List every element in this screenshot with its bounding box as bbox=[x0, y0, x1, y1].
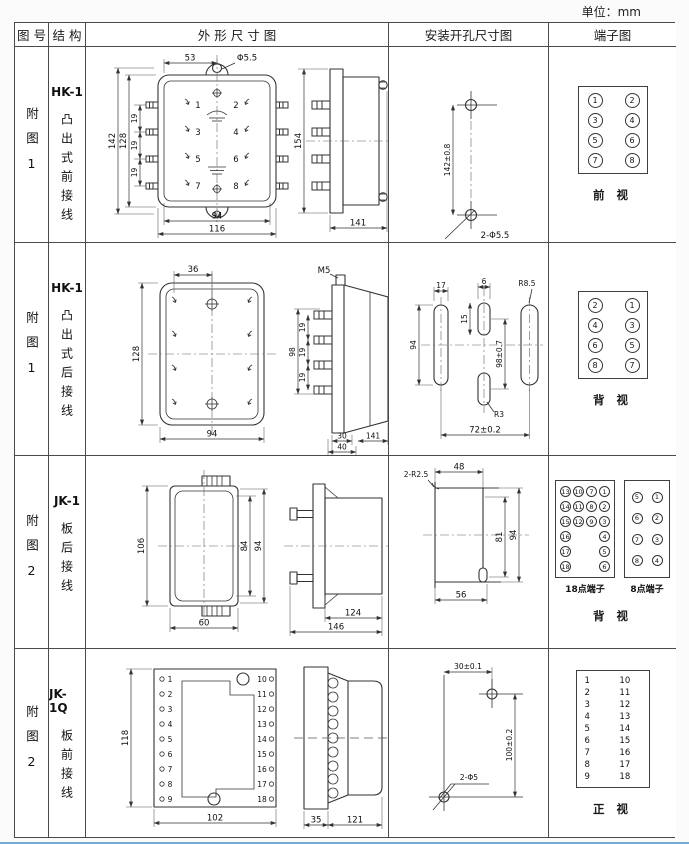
structure-desc: 凸出式前接线 bbox=[59, 113, 76, 227]
terminal-pin: 2 bbox=[599, 501, 610, 512]
front-view: 1 2 3 4 5 6 7 8 9 10 11 12 13 14 15 16 1… bbox=[121, 669, 276, 827]
terminal-pin: 12 bbox=[619, 700, 644, 710]
pin-number: 3 bbox=[168, 705, 173, 714]
dim-label: 15 bbox=[460, 314, 469, 324]
terminal-pin: 7 bbox=[588, 153, 603, 168]
terminal-cell-row1: 12345678 前 视 bbox=[549, 47, 676, 243]
header-structure: 结 构 bbox=[49, 23, 86, 47]
terminal-8pt: 51627384 8点端子 bbox=[624, 480, 670, 595]
pin-number: 13 bbox=[257, 720, 267, 729]
pin-number: 5 bbox=[195, 155, 200, 165]
dim-label: 116 bbox=[209, 225, 225, 235]
pin-number: 8 bbox=[233, 182, 238, 192]
dim-label: 94 bbox=[207, 430, 218, 440]
dim-label: 98 bbox=[288, 347, 297, 357]
pin-number: 18 bbox=[257, 795, 267, 804]
dim-label: 19 bbox=[130, 141, 139, 151]
terminal-pin: 4 bbox=[588, 318, 603, 333]
dim-label: 124 bbox=[345, 609, 361, 619]
dim-label: 40 bbox=[337, 443, 347, 452]
figure-label: 附图1 bbox=[22, 107, 41, 183]
side-view: 35 121 bbox=[294, 667, 388, 829]
mounting-drawing-hk1-rear-wiring: 17 94 6 15 98±0.7 R8.5 R3 72±0.2 bbox=[389, 243, 549, 456]
terminal-box-label: 8点端子 bbox=[630, 582, 663, 595]
pin-number: 5 bbox=[168, 735, 173, 744]
terminal-pin: 3 bbox=[585, 700, 614, 710]
mounting-drawing-hk1-front-wiring: 142±0.8 2-Φ5.5 bbox=[389, 47, 549, 243]
pin-number: 4 bbox=[233, 128, 238, 138]
terminal-pin: 3 bbox=[652, 534, 663, 545]
dim-label: 102 bbox=[207, 814, 223, 824]
structure-cell-row1: HK-1 凸出式前接线 bbox=[49, 47, 86, 243]
dim-label: 60 bbox=[199, 619, 210, 629]
terminal-pin: 8 bbox=[632, 555, 643, 566]
terminal-boxes: 131071141182151293164175186 18点端子 516273… bbox=[555, 480, 670, 595]
terminal-pin: 13 bbox=[560, 486, 571, 497]
view-caption: 正 视 bbox=[593, 801, 632, 817]
dim-label: 48 bbox=[454, 463, 465, 473]
terminal-pin: 9 bbox=[585, 772, 614, 782]
terminal-cell-row3: 131071141182151293164175186 18点端子 516273… bbox=[549, 456, 676, 649]
dim-label: 30±0.1 bbox=[454, 662, 482, 671]
header-terminal: 端子图 bbox=[549, 23, 676, 47]
pin-number: 11 bbox=[257, 690, 267, 699]
manual-page: { "unit_label": "单位：mm", "page": { "acce… bbox=[0, 0, 689, 844]
terminal-pin: 16 bbox=[560, 531, 571, 542]
terminal-pin: 8 bbox=[585, 760, 614, 770]
terminal-pin: 3 bbox=[599, 516, 610, 527]
dim-label: Φ5.5 bbox=[237, 54, 257, 64]
dim-label: 128 bbox=[132, 346, 142, 362]
dim-label: 2-Φ5 bbox=[460, 773, 478, 782]
dim-label: 2-R2.5 bbox=[404, 470, 429, 479]
terminal-box: 21436587 bbox=[578, 291, 648, 379]
terminal-pin: 17 bbox=[619, 760, 644, 770]
terminal-pin: 1 bbox=[599, 486, 610, 497]
dim-label: 6 bbox=[482, 277, 487, 286]
terminal-pin: 15 bbox=[619, 736, 644, 746]
terminal-pin: 14 bbox=[560, 501, 571, 512]
terminal-pin: 2 bbox=[625, 93, 640, 108]
mounting-cell-row4: 30±0.1 100±0.2 2-Φ5 bbox=[389, 649, 549, 837]
terminal-pin: 8 bbox=[586, 501, 597, 512]
terminal-box: 12345678 bbox=[578, 86, 648, 174]
terminal-pin: 6 bbox=[632, 513, 643, 524]
terminal-pin: 15 bbox=[560, 516, 571, 527]
outline-cell-row4: 1 2 3 4 5 6 7 8 9 10 11 12 13 14 15 16 1… bbox=[86, 649, 389, 837]
dim-label: R3 bbox=[494, 410, 504, 419]
figure-label: 附图2 bbox=[22, 514, 41, 590]
dim-label: M5 bbox=[318, 266, 331, 276]
pin-number: 2 bbox=[168, 690, 173, 699]
structure-cell-row3: JK-1 板后接线 bbox=[49, 456, 86, 649]
terminal-box-8: 51627384 bbox=[624, 480, 670, 578]
terminal-pin: 4 bbox=[599, 531, 610, 542]
structure-cell-row4: JK-1Q 板前接线 bbox=[49, 649, 86, 837]
structure-cell-row2: HK-1 凸出式后接线 bbox=[49, 243, 86, 456]
terminal-pin: 4 bbox=[625, 113, 640, 128]
terminal-pin: 1 bbox=[588, 93, 603, 108]
pin-number: 10 bbox=[257, 675, 267, 684]
pin-number: 6 bbox=[233, 155, 238, 165]
view-caption: 背 视 bbox=[593, 608, 632, 624]
dim-label: 128 bbox=[119, 133, 129, 149]
dim-label: 53 bbox=[185, 54, 196, 64]
header-figure: 图 号 bbox=[15, 23, 49, 47]
dim-label: 35 bbox=[311, 816, 322, 826]
unit-label: 单位：mm bbox=[582, 3, 641, 20]
terminal-pin: 4 bbox=[585, 712, 614, 722]
dim-label: 142 bbox=[108, 133, 118, 149]
pin-number: 16 bbox=[257, 765, 267, 774]
mounting-drawing-jk1q-board-front: 30±0.1 100±0.2 2-Φ5 bbox=[389, 649, 549, 837]
terminal-col-left: 123456789 bbox=[585, 676, 614, 782]
dim-label: 154 bbox=[294, 133, 304, 149]
dim-label: 94 bbox=[254, 541, 264, 552]
terminal-pin: 3 bbox=[588, 113, 603, 128]
dim-label: 121 bbox=[347, 816, 363, 826]
side-view: 124 146 bbox=[284, 484, 388, 636]
dim-label: 19 bbox=[298, 323, 307, 333]
dim-label: 146 bbox=[328, 623, 344, 633]
terminal-pin: 2 bbox=[652, 513, 663, 524]
header-outline: 外 形 尺 寸 图 bbox=[86, 23, 389, 47]
dim-label: 141 bbox=[350, 219, 366, 229]
terminal-pin: 2 bbox=[588, 298, 603, 313]
terminal-pin: 6 bbox=[599, 561, 610, 572]
terminal-pin: 17 bbox=[560, 546, 571, 557]
terminal-pin: 5 bbox=[588, 133, 603, 148]
pin-number: 4 bbox=[168, 720, 173, 729]
pin-number: 8 bbox=[168, 780, 173, 789]
dim-label: 19 bbox=[130, 114, 139, 124]
terminal-pin: 7 bbox=[586, 486, 597, 497]
terminal-pin: 16 bbox=[619, 748, 644, 758]
mounting-cell-row1: 142±0.8 2-Φ5.5 bbox=[389, 47, 549, 243]
terminal-pin: 1 bbox=[652, 492, 663, 503]
pin-number: 3 bbox=[195, 128, 200, 138]
structure-desc: 板前接线 bbox=[59, 729, 76, 805]
terminal-pin: 11 bbox=[573, 501, 584, 512]
outline-drawing-jk1-board-rear: 106 60 84 94 bbox=[86, 456, 389, 649]
pin-number: 7 bbox=[195, 182, 200, 192]
terminal-pin: 18 bbox=[619, 772, 644, 782]
pin-number: 15 bbox=[257, 750, 267, 759]
dim-label: 100±0.2 bbox=[505, 729, 514, 762]
outline-drawing-hk1-front-wiring: 53 Φ5.5 1 2 bbox=[86, 47, 389, 243]
outline-cell-row2: 36 128 94 M5 bbox=[86, 243, 389, 456]
terminal-cell-row2: 21436587 背 视 bbox=[549, 243, 676, 456]
dim-label: 98±0.7 bbox=[495, 340, 504, 368]
dim-label: 17 bbox=[436, 281, 446, 290]
terminal-pin: 14 bbox=[619, 724, 644, 734]
structure-desc: 板后接线 bbox=[59, 522, 76, 598]
terminal-box-18: 131071141182151293164175186 bbox=[555, 480, 615, 578]
figure-label: 附图1 bbox=[22, 311, 41, 387]
outline-drawing-jk1q-board-front: 1 2 3 4 5 6 7 8 9 10 11 12 13 14 15 16 1… bbox=[86, 649, 389, 837]
outline-cell-row1: 53 Φ5.5 1 2 bbox=[86, 47, 389, 243]
pin-number: 14 bbox=[257, 735, 267, 744]
figure-cell-row4: 附图2 bbox=[15, 649, 49, 837]
figure-label: 附图2 bbox=[22, 705, 41, 781]
terminal-pin: 8 bbox=[625, 153, 640, 168]
terminal-pin: 5 bbox=[625, 338, 640, 353]
front-view: 106 60 84 94 bbox=[137, 470, 268, 632]
terminal-pin: 2 bbox=[585, 688, 614, 698]
terminal-cell-row4: 123456789 101112131415161718 正 视 bbox=[549, 649, 676, 837]
terminal-pin: 5 bbox=[599, 546, 610, 557]
terminal-pin: 9 bbox=[586, 516, 597, 527]
dim-label: R8.5 bbox=[518, 279, 535, 288]
dim-label: 19 bbox=[298, 373, 307, 383]
terminal-pin: 10 bbox=[619, 676, 644, 686]
terminal-pin: 13 bbox=[619, 712, 644, 722]
terminal-pin: 1 bbox=[625, 298, 640, 313]
header-mounting: 安装开孔尺寸图 bbox=[389, 23, 549, 47]
figure-cell-row3: 附图2 bbox=[15, 456, 49, 649]
terminal-pin: 4 bbox=[652, 555, 663, 566]
mounting-cell-row3: 2-R2.5 48 81 94 56 bbox=[389, 456, 549, 649]
terminal-pin: 12 bbox=[573, 516, 584, 527]
terminal-box: 123456789 101112131415161718 bbox=[576, 670, 650, 788]
terminal-col-right: 101112131415161718 bbox=[613, 676, 644, 782]
figure-cell-row2: 附图1 bbox=[15, 243, 49, 456]
pin-number: 7 bbox=[168, 765, 173, 774]
dim-label: 81 bbox=[495, 532, 505, 543]
terminal-pin: 6 bbox=[588, 338, 603, 353]
dim-label: 106 bbox=[137, 538, 147, 554]
dim-label: 84 bbox=[240, 541, 250, 552]
terminal-pin: 5 bbox=[632, 492, 643, 503]
model-label: JK-1Q bbox=[49, 687, 85, 715]
terminal-pin: 7 bbox=[585, 748, 614, 758]
model-label: HK-1 bbox=[51, 281, 83, 295]
terminal-pin: 6 bbox=[585, 736, 614, 746]
dim-label: 19 bbox=[298, 348, 307, 358]
dim-label: 94 bbox=[409, 340, 418, 350]
side-view: M5 98 19 19 19 3 bbox=[288, 266, 388, 455]
front-view: 36 128 94 bbox=[132, 265, 276, 443]
pin-number: 9 bbox=[168, 795, 173, 804]
dim-label: 72±0.2 bbox=[469, 426, 500, 436]
pin-number: 12 bbox=[257, 705, 267, 714]
dim-label: 19 bbox=[130, 168, 139, 178]
mounting-drawing-jk1-board-rear: 2-R2.5 48 81 94 56 bbox=[389, 456, 549, 649]
model-label: JK-1 bbox=[54, 494, 80, 508]
dim-label: 56 bbox=[456, 591, 467, 601]
dim-label: 36 bbox=[188, 265, 199, 275]
pin-number: 1 bbox=[195, 101, 200, 111]
drawing-table: 图 号 结 构 外 形 尺 寸 图 安装开孔尺寸图 端子图 附图1 HK-1 凸… bbox=[14, 22, 675, 838]
dim-label: 2-Φ5.5 bbox=[481, 231, 510, 241]
pin-number: 1 bbox=[168, 675, 173, 684]
outline-drawing-hk1-rear-wiring: 36 128 94 M5 bbox=[86, 243, 389, 456]
terminal-pin: 3 bbox=[625, 318, 640, 333]
view-caption: 前 视 bbox=[593, 187, 632, 203]
pin-number: 6 bbox=[168, 750, 173, 759]
view-caption: 背 视 bbox=[593, 392, 632, 408]
terminal-pin: 7 bbox=[625, 358, 640, 373]
front-view: 53 Φ5.5 1 2 bbox=[108, 54, 288, 239]
figure-cell-row1: 附图1 bbox=[15, 47, 49, 243]
terminal-18pt: 131071141182151293164175186 18点端子 bbox=[555, 480, 615, 595]
mounting-cell-row2: 17 94 6 15 98±0.7 R8.5 R3 72±0.2 bbox=[389, 243, 549, 456]
side-view: 154 141 bbox=[294, 69, 388, 232]
model-label: HK-1 bbox=[51, 85, 83, 99]
terminal-pin: 7 bbox=[632, 534, 643, 545]
dim-label: 141 bbox=[366, 432, 381, 441]
outline-cell-row3: 106 60 84 94 bbox=[86, 456, 389, 649]
terminal-pin: 18 bbox=[560, 561, 571, 572]
terminal-box-label: 18点端子 bbox=[565, 582, 605, 595]
dim-label: 118 bbox=[121, 730, 131, 746]
pin-number: 17 bbox=[257, 780, 267, 789]
terminal-pin: 10 bbox=[573, 486, 584, 497]
terminal-pin: 8 bbox=[588, 358, 603, 373]
dim-label: 30 bbox=[337, 432, 347, 441]
terminal-pin: 11 bbox=[619, 688, 644, 698]
structure-desc: 凸出式后接线 bbox=[59, 309, 76, 423]
terminal-pin: 1 bbox=[585, 676, 614, 686]
dim-label: 94 bbox=[212, 212, 223, 222]
terminal-pin: 5 bbox=[585, 724, 614, 734]
dim-label: 142±0.8 bbox=[443, 144, 452, 177]
terminal-pin: 6 bbox=[625, 133, 640, 148]
pin-number: 2 bbox=[233, 101, 238, 111]
